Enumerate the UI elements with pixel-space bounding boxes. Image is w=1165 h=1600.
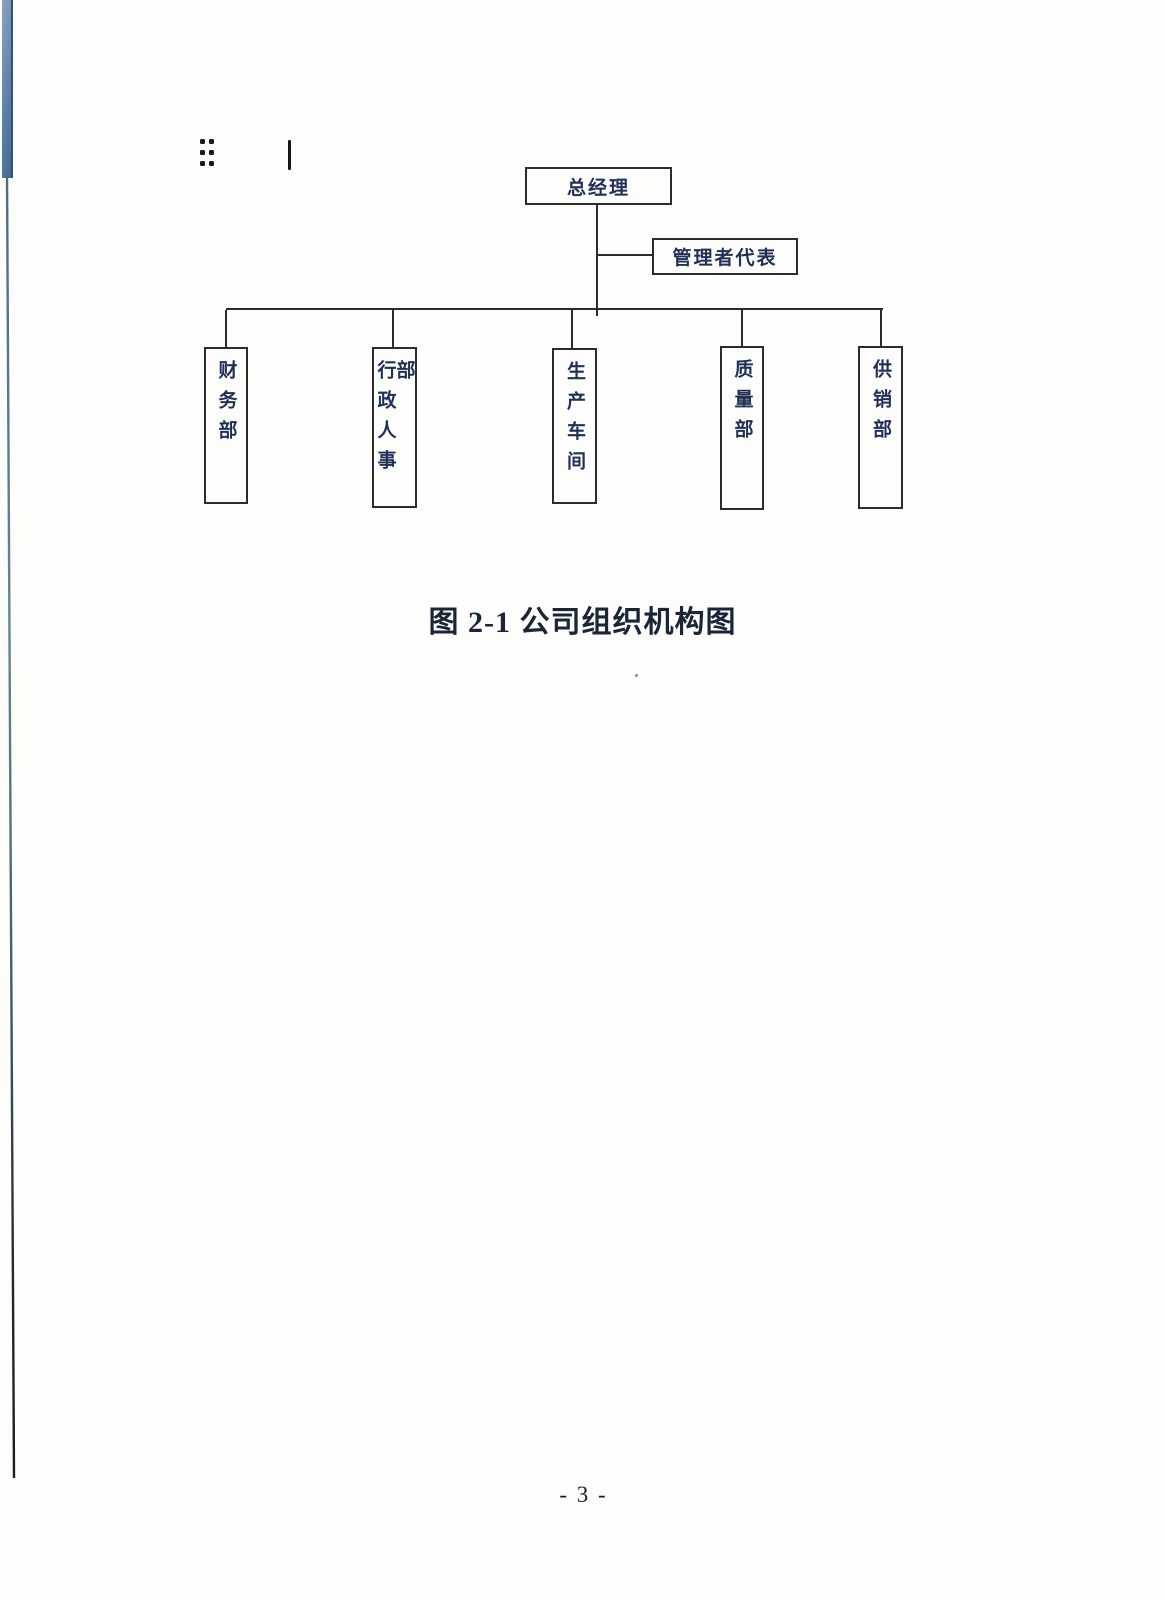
dot-mark bbox=[209, 139, 214, 144]
trunk-line bbox=[596, 205, 598, 316]
org-box-finance-dept: 财务部 bbox=[204, 347, 248, 504]
drop-line-quality bbox=[741, 310, 743, 347]
org-box-production-workshop: 生产车间 bbox=[552, 348, 597, 504]
org-box-general-manager: 总经理 bbox=[525, 167, 672, 205]
page-number: - 3 - bbox=[0, 1482, 1165, 1508]
org-box-quality-dept: 质量部 bbox=[720, 346, 764, 510]
dot-mark bbox=[209, 161, 214, 166]
org-box-quality-dept-label: 质量部 bbox=[733, 359, 752, 449]
org-box-supply-sales-dept-label: 供销部 bbox=[871, 359, 890, 449]
figure-caption: 图 2-1 公司组织机构图 bbox=[0, 597, 1165, 641]
tick-mark bbox=[288, 140, 291, 170]
org-box-production-workshop-label: 生产车间 bbox=[565, 361, 584, 481]
dot-mark bbox=[209, 150, 214, 155]
org-box-management-representative: 管理者代表 bbox=[652, 238, 798, 275]
scan-edge-line bbox=[0, 0, 30, 1600]
org-box-supply-sales-dept: 供销部 bbox=[858, 346, 903, 509]
org-box-management-representative-label: 管理者代表 bbox=[672, 243, 777, 270]
dot-mark bbox=[200, 150, 205, 155]
dot-mark bbox=[200, 139, 205, 144]
org-box-finance-dept-label: 财务部 bbox=[217, 360, 236, 450]
dot-mark bbox=[200, 161, 205, 166]
drop-line-admin-hr bbox=[392, 310, 394, 347]
main-bar-line bbox=[226, 308, 883, 310]
org-box-admin-hr-dept-label: 行政人事部 bbox=[376, 360, 414, 506]
drop-line-production bbox=[571, 310, 573, 348]
scan-speck bbox=[635, 674, 638, 677]
scanned-document-page: 总经理 管理者代表 财务部 行政人事部 生产车间 质量部 供销部 图 2-1 公… bbox=[0, 0, 1165, 1600]
drop-line-supply-sales bbox=[880, 310, 882, 346]
org-box-admin-hr-dept: 行政人事部 bbox=[372, 347, 417, 508]
org-box-general-manager-label: 总经理 bbox=[567, 173, 630, 200]
management-rep-connector-line bbox=[597, 254, 653, 256]
drop-line-finance bbox=[225, 310, 227, 347]
